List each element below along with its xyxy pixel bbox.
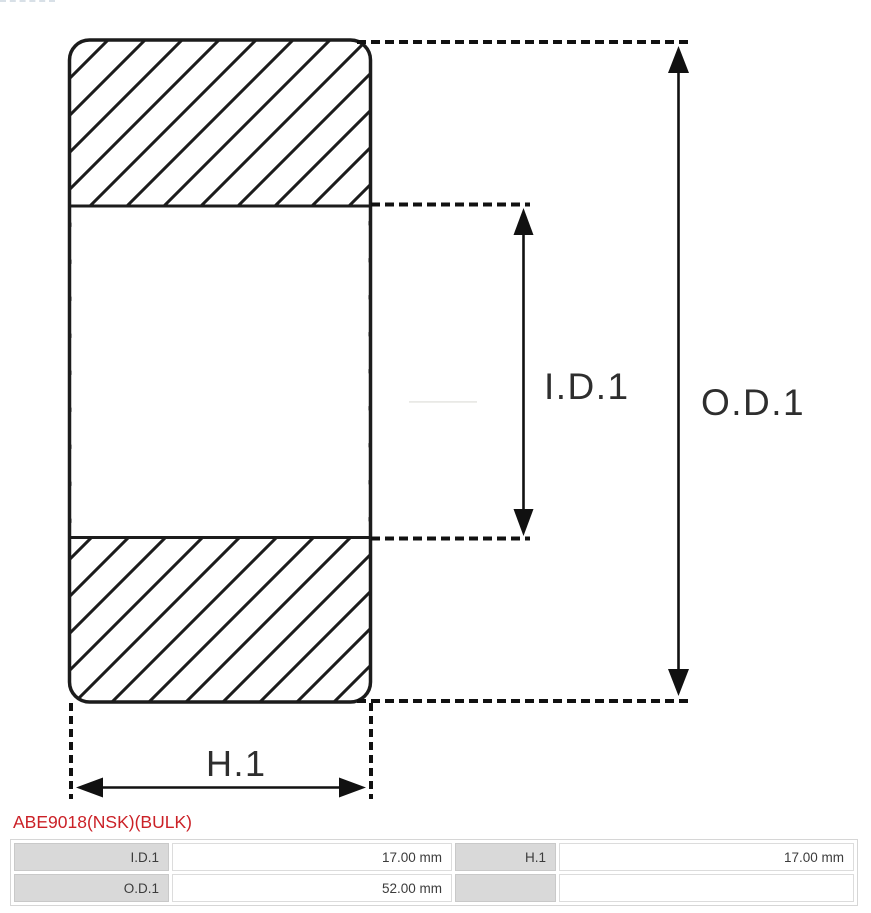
faint-centerline	[409, 401, 477, 403]
spec-value-h: 17.00 mm	[559, 843, 854, 871]
table-row: I.D.1 17.00 mm H.1 17.00 mm	[14, 843, 854, 871]
spec-value-od: 52.00 mm	[172, 874, 452, 902]
spec-label-empty	[455, 874, 556, 902]
part-number-link[interactable]: ABE9018(NSK)(BULK)	[13, 813, 192, 832]
dimension-spec-table: I.D.1 17.00 mm H.1 17.00 mm O.D.1 52.00 …	[10, 839, 858, 906]
h-dimension-label: H.1	[206, 743, 267, 784]
od-dimension-arrow	[668, 46, 689, 696]
product-dimension-panel: I.D.1 O.D.1 H.1 ABE9018(NSK)(BULK) I.D.1…	[0, 0, 871, 913]
top-left-selection-artifact	[0, 0, 55, 4]
bearing-bore	[72, 208, 369, 537]
bearing-cross-section-diagram: I.D.1 O.D.1 H.1	[0, 0, 871, 808]
spec-value-id: 17.00 mm	[172, 843, 452, 871]
spec-value-empty	[559, 874, 854, 902]
spec-label-h: H.1	[455, 843, 556, 871]
id-dimension-arrow	[514, 208, 534, 536]
spec-label-od: O.D.1	[14, 874, 169, 902]
od-dimension-label: O.D.1	[701, 382, 805, 423]
spec-label-id: I.D.1	[14, 843, 169, 871]
id-dimension-label: I.D.1	[544, 366, 630, 407]
table-row: O.D.1 52.00 mm	[14, 874, 854, 902]
